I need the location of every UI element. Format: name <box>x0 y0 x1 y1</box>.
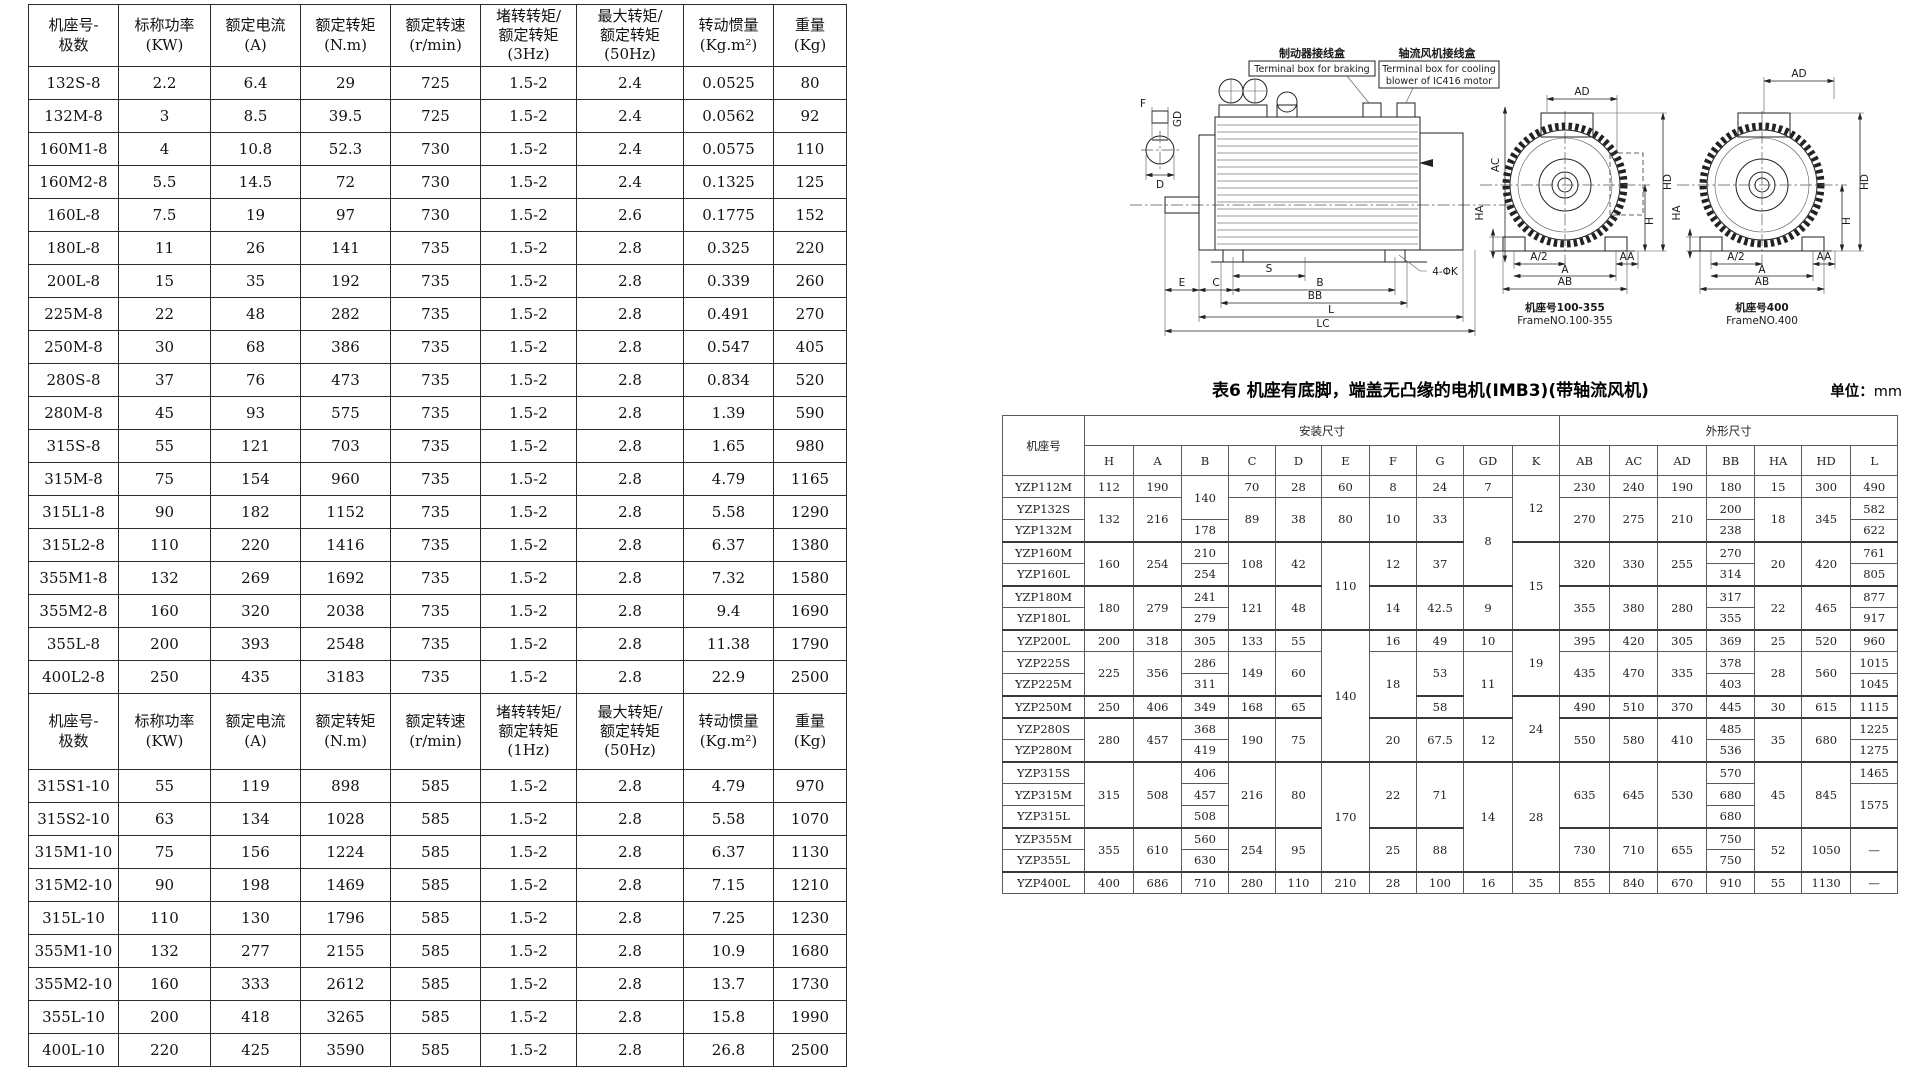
header-cell: E <box>1322 446 1370 476</box>
cell: YZP280M <box>1003 740 1085 762</box>
dimension-drawing-svg: F GD D 制动器接线盒 Terminal box for braking 轴… <box>1115 45 1915 345</box>
cell: 92 <box>774 100 847 133</box>
cell: 356 <box>1134 652 1182 696</box>
cell: 16 <box>1464 872 1513 894</box>
table-row: 355L-820039325487351.5-22.811.381790 <box>29 628 847 661</box>
cell: 680 <box>1802 718 1851 762</box>
cell: 318 <box>1134 630 1182 652</box>
cell: 270 <box>1560 498 1610 542</box>
cell: 200 <box>1707 498 1755 520</box>
cell: 280 <box>1229 872 1276 894</box>
cell: 1.5-2 <box>481 133 577 166</box>
cell: 0.0575 <box>684 133 774 166</box>
header-cell: 额定电流 (A) <box>211 5 301 67</box>
cell: 160 <box>119 595 211 628</box>
cell: YZP250M <box>1003 696 1085 718</box>
cell: 0.325 <box>684 232 774 265</box>
cell: 380 <box>1610 586 1658 630</box>
cell: 49 <box>1417 630 1464 652</box>
cell: 355M2-8 <box>29 595 119 628</box>
table-row: YZP250M250406349168655824490510370445306… <box>1003 696 1898 718</box>
cell: 1.5-2 <box>481 199 577 232</box>
cell: 241 <box>1182 586 1229 608</box>
table-row: 机座号- 极数标称功率 (KW)额定电流 (A)额定转矩 (N.m)额定转速 (… <box>29 5 847 67</box>
dim-label-a2: A/2 <box>1727 251 1744 263</box>
cell: 1.5-2 <box>481 770 577 803</box>
cell: YZP180L <box>1003 608 1085 630</box>
cell: 1.5-2 <box>481 803 577 836</box>
cell: 2.2 <box>119 67 211 100</box>
cell: 369 <box>1707 630 1755 652</box>
table-row: 315M-8751549607351.5-22.84.791165 <box>29 463 847 496</box>
header-cell: A <box>1134 446 1182 476</box>
cell: 250 <box>119 661 211 694</box>
cell: 97 <box>301 199 391 232</box>
cell: 1680 <box>774 935 847 968</box>
cell: 6.4 <box>211 67 301 100</box>
cell: 18 <box>1755 498 1802 542</box>
cell: 490 <box>1560 696 1610 718</box>
cell: 1.5-2 <box>481 463 577 496</box>
header-cell: 机座号- 极数 <box>29 5 119 67</box>
cell: 182 <box>211 496 301 529</box>
cell: 4 <box>119 133 211 166</box>
cell: 960 <box>1851 630 1898 652</box>
cell: 15.8 <box>684 1001 774 1034</box>
cell: YZP280S <box>1003 718 1085 740</box>
table-row: 355M1-813226916927351.5-22.87.321580 <box>29 562 847 595</box>
cell: 75 <box>119 463 211 496</box>
cell: 315 <box>1085 762 1134 828</box>
cell: 238 <box>1707 520 1755 542</box>
cell: 2.8 <box>577 902 684 935</box>
dim-label-a: A <box>1561 264 1569 276</box>
cell: 355M1-8 <box>29 562 119 595</box>
cell: 1692 <box>301 562 391 595</box>
dim-label-gd: GD <box>1172 111 1184 127</box>
cell: 2.4 <box>577 67 684 100</box>
cell: 2.8 <box>577 232 684 265</box>
cell: 1.5-2 <box>481 265 577 298</box>
cell: 355L-10 <box>29 1001 119 1034</box>
cell: 575 <box>301 397 391 430</box>
cell: 93 <box>211 397 301 430</box>
cell: 76 <box>211 364 301 397</box>
header-cell: 安装尺寸 <box>1085 416 1560 446</box>
cell: YZP200L <box>1003 630 1085 652</box>
cell: 420 <box>1610 630 1658 652</box>
cell: 315L2-8 <box>29 529 119 562</box>
cell: 280 <box>1085 718 1134 762</box>
cell: 200L-8 <box>29 265 119 298</box>
cell: 1690 <box>774 595 847 628</box>
cell: 132 <box>1085 498 1134 542</box>
cell: 180 <box>1707 476 1755 498</box>
table6-title-row: 表6 机座有底脚，端盖无凸缘的电机(IMB3)(带轴流风机) 单位：mm <box>1212 376 1902 401</box>
cell: 22 <box>1370 762 1417 828</box>
cell: 315M-8 <box>29 463 119 496</box>
cell: 200 <box>1085 630 1134 652</box>
cell: 418 <box>211 1001 301 1034</box>
cell: 160M1-8 <box>29 133 119 166</box>
table-row: 132M-838.539.57251.5-22.40.056292 <box>29 100 847 133</box>
cell: 1.5-2 <box>481 595 577 628</box>
cell: 80 <box>1276 762 1322 828</box>
cell: 314 <box>1707 564 1755 586</box>
cell: 190 <box>1134 476 1182 498</box>
cell: 508 <box>1134 762 1182 828</box>
cell: 485 <box>1707 718 1755 740</box>
cell: 355 <box>1707 608 1755 630</box>
cell: 635 <box>1560 762 1610 828</box>
cell: 280S-8 <box>29 364 119 397</box>
catalog-page: { "left_table": { "cols": [90,92,90,90,9… <box>0 0 1920 1064</box>
cell: 15 <box>1513 542 1560 630</box>
cell: 200 <box>119 628 211 661</box>
cell: 320 <box>211 595 301 628</box>
cell: 910 <box>1707 872 1755 894</box>
cell: 386 <box>301 331 391 364</box>
fan-terminal-box-label-cn: 轴流风机接线盒 <box>1399 46 1477 60</box>
cell: 582 <box>1851 498 1898 520</box>
cell: 1580 <box>774 562 847 595</box>
cell: 1575 <box>1851 784 1898 828</box>
cell: 585 <box>391 869 481 902</box>
dim-label-e: E <box>1179 277 1186 289</box>
end-view-frame400: AD HD H HA A/2 AA A AB 机座号400 FrameNO.40… <box>1671 68 1871 327</box>
cell: YZP315S <box>1003 762 1085 784</box>
header-cell: G <box>1417 446 1464 476</box>
cell: 13.7 <box>684 968 774 1001</box>
cell: 190 <box>1658 476 1707 498</box>
cell: 6.37 <box>684 836 774 869</box>
cell: 1.5-2 <box>481 869 577 902</box>
cell: 585 <box>391 770 481 803</box>
cell: 400 <box>1085 872 1134 894</box>
cell: 11 <box>119 232 211 265</box>
cell: 24 <box>1417 476 1464 498</box>
cell: 33 <box>1417 498 1464 542</box>
cell: 300 <box>1802 476 1851 498</box>
cell: 14.5 <box>211 166 301 199</box>
cell: 254 <box>1182 564 1229 586</box>
header-cell: BB <box>1707 446 1755 476</box>
cell: 735 <box>391 397 481 430</box>
cell: 315S1-10 <box>29 770 119 803</box>
cell: 60 <box>1322 476 1370 498</box>
dim-label-ab: AB <box>1558 276 1572 288</box>
cell: 130 <box>211 902 301 935</box>
cell: 403 <box>1707 674 1755 696</box>
cell: 335 <box>1658 652 1707 696</box>
cell: 465 <box>1802 586 1851 630</box>
cell: 333 <box>211 968 301 1001</box>
header-cell: 转动惯量 (Kg.m²) <box>684 5 774 67</box>
header-cell: 额定转矩 (N.m) <box>301 5 391 67</box>
cell: 730 <box>391 199 481 232</box>
cell: 152 <box>774 199 847 232</box>
cell: 132 <box>119 935 211 968</box>
cell: 42.5 <box>1417 586 1464 630</box>
cell: 2.8 <box>577 869 684 902</box>
table-row: YZP400L400686710280110210281001635855840… <box>1003 872 1898 894</box>
table-row: YZP315S315508406216801702271142863564553… <box>1003 762 1898 784</box>
cell: 2038 <box>301 595 391 628</box>
cell: 1130 <box>1802 872 1851 894</box>
cell: — <box>1851 828 1898 872</box>
cell: 735 <box>391 628 481 661</box>
cell: 7.25 <box>684 902 774 935</box>
cell: 1.5-2 <box>481 100 577 133</box>
cell: 315M2-10 <box>29 869 119 902</box>
cell: 1.5-2 <box>481 968 577 1001</box>
cell: 279 <box>1182 608 1229 630</box>
cell: 735 <box>391 496 481 529</box>
cell: 170 <box>1322 762 1370 872</box>
cell: 2.8 <box>577 430 684 463</box>
cell: 622 <box>1851 520 1898 542</box>
dim-label-a: A <box>1758 264 1766 276</box>
cell: 22.9 <box>684 661 774 694</box>
cell: 703 <box>301 430 391 463</box>
cell: 2.8 <box>577 397 684 430</box>
cell: YZP355M <box>1003 828 1085 850</box>
cell: 370 <box>1658 696 1707 718</box>
cell: 680 <box>1707 784 1755 806</box>
cell: 898 <box>301 770 391 803</box>
cell: 134 <box>211 803 301 836</box>
cell: 330 <box>1610 542 1658 586</box>
table-row: 400L-1022042535905851.5-22.826.82500 <box>29 1034 847 1067</box>
table-row: 315M2-109019814695851.5-22.87.151210 <box>29 869 847 902</box>
table-row: YZP132S132216893880103382702752102001834… <box>1003 498 1898 520</box>
table-row: 315S-8551217037351.5-22.81.65980 <box>29 430 847 463</box>
header-cell: 标称功率 (KW) <box>119 5 211 67</box>
cell: 1130 <box>774 836 847 869</box>
cell: 730 <box>391 133 481 166</box>
cell: 735 <box>391 298 481 331</box>
cell: 1790 <box>774 628 847 661</box>
cell: 0.491 <box>684 298 774 331</box>
cell: 160M2-8 <box>29 166 119 199</box>
cell: 5.5 <box>119 166 211 199</box>
cell: 216 <box>1134 498 1182 542</box>
cell: 680 <box>1707 806 1755 828</box>
cell: 112 <box>1085 476 1134 498</box>
cell: 5.58 <box>684 496 774 529</box>
cell: 11 <box>1464 652 1513 718</box>
cell: 121 <box>211 430 301 463</box>
cell: 315M1-10 <box>29 836 119 869</box>
table-row: 355M2-1016033326125851.5-22.813.71730 <box>29 968 847 1001</box>
cell: 37 <box>1417 542 1464 586</box>
table-row: YZP225S225356286149601853114354703353782… <box>1003 652 1898 674</box>
cell: 630 <box>1182 850 1229 872</box>
cell: 108 <box>1229 542 1276 586</box>
dim-label-a2: A/2 <box>1530 251 1547 263</box>
cell: 1469 <box>301 869 391 902</box>
cell: 216 <box>1229 762 1276 828</box>
cell: 48 <box>1276 586 1322 630</box>
cell: 670 <box>1658 872 1707 894</box>
cell: 2.8 <box>577 298 684 331</box>
cell: 560 <box>1802 652 1851 696</box>
cell: 42 <box>1276 542 1322 586</box>
cell: 1.5-2 <box>481 397 577 430</box>
cell: 393 <box>211 628 301 661</box>
table-row: 机座号- 极数标称功率 (KW)额定电流 (A)额定转矩 (N.m)额定转速 (… <box>29 694 847 770</box>
cell: 2.8 <box>577 628 684 661</box>
cell: 52 <box>1755 828 1802 872</box>
dim-label-aa: AA <box>1620 251 1635 263</box>
header-cell: 堵转转矩/ 额定转矩 (1Hz) <box>481 694 577 770</box>
cell: 686 <box>1134 872 1182 894</box>
cell: 845 <box>1802 762 1851 828</box>
cell: 3183 <box>301 661 391 694</box>
cell: 615 <box>1802 696 1851 718</box>
header-cell: 最大转矩/ 额定转矩 (50Hz) <box>577 694 684 770</box>
cell: 140 <box>1322 630 1370 762</box>
cell: 1380 <box>774 529 847 562</box>
cell: 55 <box>1755 872 1802 894</box>
cell: 560 <box>1182 828 1229 850</box>
cell: 7 <box>1464 476 1513 498</box>
cell: 121 <box>1229 586 1276 630</box>
cell: 58 <box>1417 696 1464 718</box>
cell: 52.3 <box>301 133 391 166</box>
cell: 530 <box>1658 762 1707 828</box>
cell: 7.15 <box>684 869 774 902</box>
cell: 149 <box>1229 652 1276 696</box>
unit-value: mm <box>1874 384 1902 400</box>
cell: YZP315M <box>1003 784 1085 806</box>
cell: 570 <box>1707 762 1755 784</box>
cell: 1115 <box>1851 696 1898 718</box>
dim-label-ab: AB <box>1755 276 1769 288</box>
cell: 1230 <box>774 902 847 935</box>
brake-terminal-box-label-cn: 制动器接线盒 <box>1279 46 1346 60</box>
cell: 1210 <box>774 869 847 902</box>
cell: 55 <box>119 770 211 803</box>
cell: 22 <box>119 298 211 331</box>
cell: 710 <box>1182 872 1229 894</box>
dim-label-s: S <box>1266 263 1273 275</box>
cell: 655 <box>1658 828 1707 872</box>
direction-arrow <box>1419 159 1433 167</box>
table-row: 200L-815351927351.5-22.80.339260 <box>29 265 847 298</box>
cell: 305 <box>1658 630 1707 652</box>
cell: 725 <box>391 67 481 100</box>
table-row: 180L-811261417351.5-22.80.325220 <box>29 232 847 265</box>
cell: 53 <box>1417 652 1464 696</box>
cell: 35 <box>211 265 301 298</box>
cell: 1225 <box>1851 718 1898 740</box>
cell: 270 <box>774 298 847 331</box>
cell: 1.5-2 <box>481 430 577 463</box>
motor-performance-table: 机座号- 极数标称功率 (KW)额定电流 (A)额定转矩 (N.m)额定转速 (… <box>28 4 847 1067</box>
frame-caption-en: FrameNO.400 <box>1726 315 1798 327</box>
table-row: 315S1-10551198985851.5-22.84.79970 <box>29 770 847 803</box>
cell: 1275 <box>1851 740 1898 762</box>
cell: 445 <box>1707 696 1755 718</box>
table-row: 315S2-106313410285851.5-22.85.581070 <box>29 803 847 836</box>
table-row: 250M-830683867351.5-22.80.547405 <box>29 331 847 364</box>
cell: 26 <box>211 232 301 265</box>
cell: 877 <box>1851 586 1898 608</box>
cell: 473 <box>301 364 391 397</box>
header-cell: 堵转转矩/ 额定转矩 (3Hz) <box>481 5 577 67</box>
cell: 490 <box>1851 476 1898 498</box>
table-row: YZP280S280457368190752067.51255058041048… <box>1003 718 1898 740</box>
header-cell: 额定电流 (A) <box>211 694 301 770</box>
cell: 89 <box>1229 498 1276 542</box>
cell: 198 <box>211 869 301 902</box>
header-cell: 标称功率 (KW) <box>119 694 211 770</box>
cell: 110 <box>774 133 847 166</box>
table-row: 机座号安装尺寸外形尺寸 <box>1003 416 1898 446</box>
cell: 20 <box>1755 542 1802 586</box>
cell: 855 <box>1560 872 1610 894</box>
cell: 1.5-2 <box>481 836 577 869</box>
cell: 225 <box>1085 652 1134 696</box>
fan-terminal-box-label-en1: Terminal box for cooling <box>1381 64 1496 75</box>
cell: 279 <box>1134 586 1182 630</box>
cell: 220 <box>119 1034 211 1067</box>
cell: YZP160M <box>1003 542 1085 564</box>
cell: 67.5 <box>1417 718 1464 762</box>
cell: 585 <box>391 836 481 869</box>
cell: 315L-10 <box>29 902 119 935</box>
header-cell: 机座号 <box>1003 416 1085 476</box>
cell: 39.5 <box>301 100 391 133</box>
dim-label-hd: HD <box>1662 174 1674 190</box>
table-row: 355M1-1013227721555851.5-22.810.91680 <box>29 935 847 968</box>
cell: YZP132M <box>1003 520 1085 542</box>
table-row: 315L1-89018211527351.5-22.85.581290 <box>29 496 847 529</box>
cell: 14 <box>1464 762 1513 872</box>
cell: 180L-8 <box>29 232 119 265</box>
fan-terminal-box-label-en2: blower of IC416 motor <box>1386 76 1492 87</box>
cell: — <box>1851 872 1898 894</box>
cell: 735 <box>391 430 481 463</box>
cell: 168 <box>1229 696 1276 718</box>
cell: 12 <box>1464 718 1513 762</box>
table-row: 315M1-107515612245851.5-22.86.371130 <box>29 836 847 869</box>
table-row: 280M-845935757351.5-22.81.39590 <box>29 397 847 430</box>
table-row: 315L2-811022014167351.5-22.86.371380 <box>29 529 847 562</box>
cell: 100 <box>1417 872 1464 894</box>
table-row: YZP200L200318305133551401649101939542030… <box>1003 630 1898 652</box>
cell: 178 <box>1182 520 1229 542</box>
cell: 1465 <box>1851 762 1898 784</box>
cell: 132S-8 <box>29 67 119 100</box>
cell: 735 <box>391 364 481 397</box>
cell: 5.58 <box>684 803 774 836</box>
cell: 420 <box>1802 542 1851 586</box>
cell: 35 <box>1513 872 1560 894</box>
cell: 71 <box>1417 762 1464 828</box>
cell: 750 <box>1707 828 1755 850</box>
cell: 133 <box>1229 630 1276 652</box>
cell: 345 <box>1802 498 1851 542</box>
cell: 37 <box>119 364 211 397</box>
cell: YZP225M <box>1003 674 1085 696</box>
cell: 1416 <box>301 529 391 562</box>
header-cell: 外形尺寸 <box>1560 416 1898 446</box>
cell: 18 <box>1370 652 1417 718</box>
cell: 1070 <box>774 803 847 836</box>
cell: 315S2-10 <box>29 803 119 836</box>
